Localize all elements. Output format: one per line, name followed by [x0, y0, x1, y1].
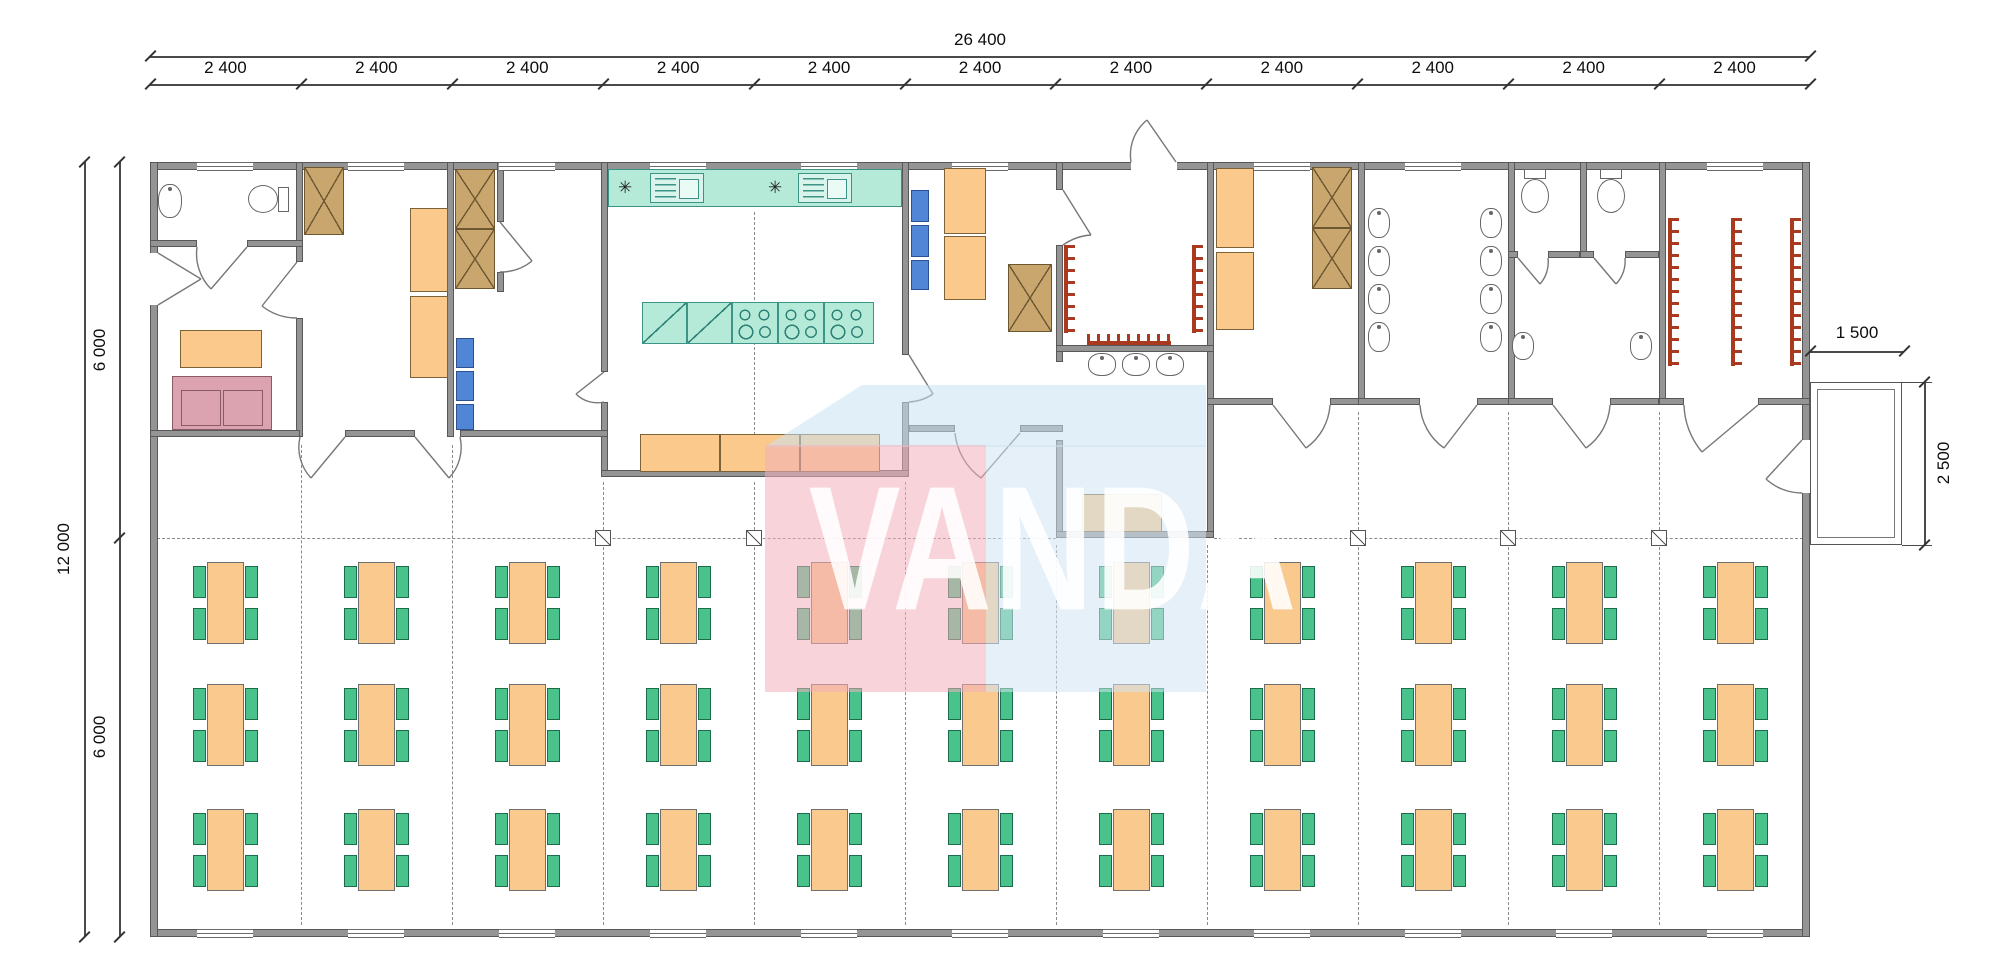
door-swings: [0, 0, 2000, 975]
floor-plan: ✳ ✳ 26: [0, 0, 2000, 975]
